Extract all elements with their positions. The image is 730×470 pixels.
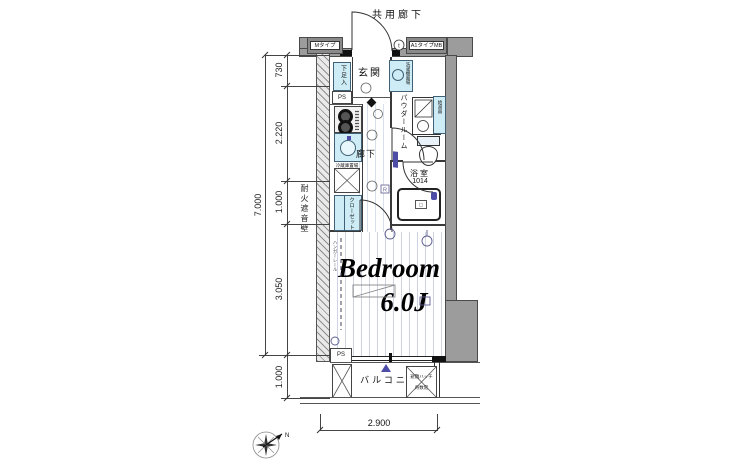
shoe-cabinet: 下足入 (333, 62, 351, 91)
meter-box-right: A1タイプMB (406, 37, 447, 54)
right-edge-line (446, 362, 480, 363)
bedroom-size: 6.0J (345, 286, 463, 319)
meter-box-right-label: A1タイプMB (409, 41, 444, 50)
dim-7000: 7.000 (253, 183, 265, 227)
dim-ext-1000 (281, 224, 330, 225)
washing-machine-label: 洗濯機置場 (405, 62, 411, 92)
bathtub-fitting-icon: ◻ (415, 200, 427, 209)
dim-balcony-1000: 1.000 (274, 355, 286, 399)
faucet-icon (347, 136, 351, 140)
water-heater-label: 給湯器 (437, 100, 443, 132)
fireproof-wall-label: 耐火遮音壁 (299, 184, 310, 274)
balcony-drain-box (332, 364, 352, 398)
pipe-space-bottom: PS (330, 348, 352, 363)
entrance-step-line (352, 97, 390, 98)
entrance-door-jamb-right (392, 50, 400, 56)
compass-icon: N (253, 432, 289, 458)
dim-ext-balcony (281, 398, 330, 399)
closet-label: クローゼット (347, 197, 355, 231)
powder-room-label: パウダールーム (398, 94, 408, 174)
dim-end-bottom-left (320, 414, 321, 431)
toilet-tank (417, 136, 440, 146)
pipe-space-top: PS (332, 91, 352, 104)
dim-ext-2220 (281, 181, 330, 182)
bathroom-size: 1014 (402, 178, 438, 185)
evacuation-hatch: 避難ハッチ 奇数階 (406, 366, 437, 398)
water-heater: 給湯器 (433, 96, 446, 134)
meter-box-left: MタイプMB (307, 37, 343, 54)
toilet-bowl-icon (419, 146, 438, 166)
balcony-top-edge (330, 362, 446, 363)
meter-box-left-label: MタイプMB (310, 41, 340, 50)
hallway-label: 廊下 (356, 147, 376, 160)
partition-powder-left-lower (390, 160, 392, 230)
pipe-space-bottom-label: PS (337, 352, 345, 358)
wall-left-fireproof (316, 52, 330, 362)
stove-grill (355, 110, 359, 130)
dim-2900: 2.900 (349, 418, 409, 428)
closet-divider (344, 196, 345, 230)
washing-machine-icon (392, 69, 404, 81)
floor-plan-canvas: MタイプMB A1タイプMB 下足入 PS 冷蔵庫置場 クローゼット 洗濯機置場… (0, 0, 730, 470)
shoe-cabinet-label: 下足入 (339, 65, 346, 89)
evacuation-hatch-note: 奇数階 (407, 385, 436, 391)
dim-2220: 2.220 (274, 111, 286, 155)
pipe-space-top-label: PS (338, 95, 346, 101)
bathtub-faucet-icon (431, 192, 437, 200)
dim-ext-730 (281, 86, 330, 87)
corridor-label: 共用廊下 (372, 6, 452, 21)
bathroom-bottom-wall (390, 224, 445, 226)
dim-line-bottom (320, 430, 438, 431)
dim-730: 730 (274, 48, 286, 92)
washing-machine-space: 洗濯機置場 (389, 60, 413, 92)
dim-end-bottom-right (437, 414, 438, 431)
entrance-label: 玄関 (358, 64, 382, 79)
dim-3050: 3.050 (274, 267, 286, 311)
dim-line-outer-left (265, 55, 266, 355)
hanger-rail-label: ハンガーレール (332, 240, 338, 316)
closet: クローゼット (334, 195, 362, 231)
dim-1000: 1.000 (274, 180, 286, 224)
dim-line-inner-left (287, 55, 288, 398)
kitchen-top-line (330, 104, 362, 105)
bedroom-name: Bedroom (330, 252, 448, 285)
sink-basin-icon (340, 140, 356, 156)
bathtub: ◻ (397, 188, 441, 221)
entry-direction-marker (381, 364, 391, 372)
stove (334, 106, 362, 133)
balcony-rail-line-2 (300, 403, 480, 404)
wall-top-right-block (447, 37, 473, 57)
dim-ext-3050 (259, 355, 330, 356)
refrigerator-space (334, 168, 360, 193)
evacuation-hatch-label: 避難ハッチ (407, 374, 436, 380)
balcony-window (352, 356, 432, 361)
compass-north-label: N (285, 433, 289, 439)
